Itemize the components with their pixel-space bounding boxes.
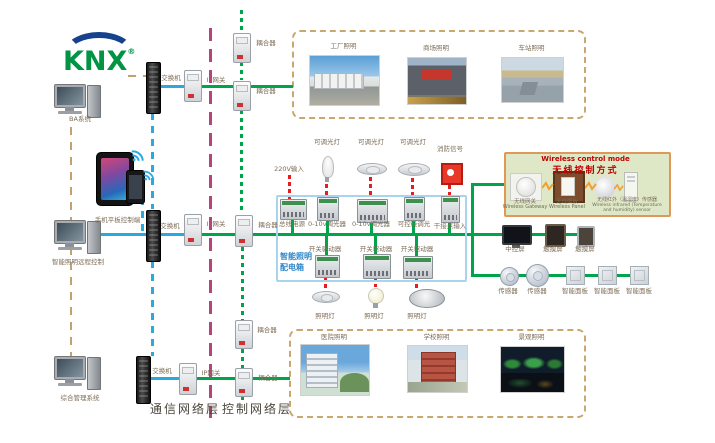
ba-system-label: BA系统 <box>40 116 120 124</box>
dimmable-lamp-label: 可调光灯 <box>393 139 433 147</box>
ethernet-line <box>149 377 180 380</box>
smart-panel-icon <box>598 266 617 285</box>
ip-gateway-label: IP网关 <box>201 77 231 85</box>
wireless-signal-icon <box>542 181 554 191</box>
photo-label: 工厂照明 <box>309 43 378 51</box>
monitor <box>54 84 86 108</box>
coupler-label: 耦合器 <box>254 375 282 383</box>
phone-screen <box>129 175 142 199</box>
knx-branch-line <box>474 233 502 236</box>
ethernet-line-dashed <box>151 113 154 209</box>
knx-line-dotted <box>240 110 243 214</box>
ip-gateway-device <box>184 70 202 102</box>
coupler-device <box>233 81 251 111</box>
knx-lighting-system-diagram: KNX® BA系统 手机平板控制端 智能照明远程控制 综合管理系统 交换机 IP… <box>0 0 715 443</box>
wireless-signal-icon <box>614 183 624 192</box>
dimmer-label: 0-10v调光器 <box>303 221 351 229</box>
remote-control-computer <box>54 220 104 256</box>
monitor-screen <box>57 223 83 241</box>
registered-mark-icon: ® <box>127 47 135 56</box>
switch-label: 交换机 <box>157 75 185 83</box>
sensor-label: 传感器 <box>492 288 524 296</box>
candle-lamp-icon <box>322 156 334 178</box>
central-screen-label: 中控屏 <box>498 246 532 254</box>
knx-trunk-line <box>471 183 474 277</box>
factory-lighting-photo <box>309 55 380 106</box>
sensor-icon <box>526 264 549 287</box>
monitor-screen <box>57 359 83 377</box>
wireless-sensor-label-en: Wireless infrared (Temperature and humid… <box>588 203 666 213</box>
knx-logo-text: KNX <box>63 46 127 77</box>
smart-panel-icon <box>566 266 585 285</box>
sensor-label: 传感器 <box>521 288 553 296</box>
bus-power-device <box>280 199 307 220</box>
monitor-screen <box>57 87 83 105</box>
switch-label: 交换机 <box>156 223 184 231</box>
knx-branch-line <box>474 274 501 277</box>
central-screen-icon <box>502 225 532 245</box>
control-layer-label: 控制网络层 <box>222 400 292 417</box>
ip-gateway-device <box>179 363 197 395</box>
switch-actuator-device <box>315 255 340 278</box>
coupler-device <box>235 215 253 247</box>
ip-gateway-label: IP网关 <box>201 221 231 229</box>
wifi-icon <box>130 145 148 163</box>
smart-panel-label: 智能面板 <box>590 288 624 296</box>
knx-line-dotted <box>241 349 244 368</box>
ethernet-line-dashed <box>151 261 154 356</box>
remote-control-label: 智能照明远程控制 <box>32 259 124 267</box>
distribution-box-title-line2: 配电箱 <box>280 262 304 273</box>
smart-panel-icon <box>630 266 649 285</box>
bulb-lamp-icon <box>368 288 384 304</box>
photo-label: 医院照明 <box>300 334 368 342</box>
touchscreen-icon <box>545 224 566 247</box>
monitor-base <box>58 383 82 386</box>
hospital-lighting-photo <box>300 344 370 396</box>
knx-line-dotted <box>241 247 244 320</box>
pc-tower <box>87 85 101 118</box>
wifi-icon <box>142 166 158 182</box>
knx-branch-line <box>474 183 505 186</box>
photo-label: 车站照明 <box>501 45 562 53</box>
switch-actuator-label: 开关驱动器 <box>393 246 441 254</box>
smart-panel-label: 智能面板 <box>622 288 656 296</box>
triac-dimmer-device <box>404 197 425 221</box>
mobile-control-label: 手机平板控制端 <box>80 217 155 225</box>
management-computer <box>54 356 104 392</box>
smart-panel-label: 智能面板 <box>558 288 592 296</box>
dimmer-label: 0-10v调光器 <box>346 221 396 229</box>
monitor-base <box>58 111 82 114</box>
coupler-label: 耦合器 <box>252 88 280 96</box>
switch-actuator-device <box>403 256 433 279</box>
dish-lamp-icon <box>409 289 445 308</box>
sensor-icon <box>500 267 519 286</box>
knx-line-dotted <box>240 10 243 31</box>
coupler-label: 耦合器 <box>252 40 280 48</box>
knx-logo: KNX® <box>63 48 135 75</box>
switch-actuator-device <box>363 254 391 279</box>
monitor <box>54 356 86 380</box>
downlight-icon <box>357 163 387 175</box>
photo-label: 景观照明 <box>500 334 563 342</box>
dry-contact-label: 干接点输入 <box>430 223 470 231</box>
ethernet-line <box>98 233 148 236</box>
ethernet-line <box>159 233 185 236</box>
fire-alarm-icon <box>441 163 463 185</box>
pc-tower <box>87 221 101 254</box>
wireless-panel-label-en: Wireless Panel <box>539 205 595 211</box>
ceiling-lamp-icon <box>398 163 430 176</box>
coupler-device <box>235 320 253 349</box>
coupler-device <box>233 33 251 63</box>
knx-branch-line <box>616 274 630 277</box>
monitor-base <box>58 247 82 250</box>
wireless-signal-icon <box>585 181 597 191</box>
pc-tower <box>87 357 101 390</box>
dry-contact-device <box>441 196 460 223</box>
station-lighting-photo <box>501 57 564 103</box>
mall-lighting-photo <box>407 57 467 105</box>
knx-branch-line <box>584 274 598 277</box>
fire-signal-label: 消防信号 <box>430 146 470 154</box>
ceiling-lamp-icon <box>312 291 340 303</box>
lighting-lamp-label: 照明灯 <box>354 313 394 321</box>
knx-line-dotted <box>240 62 243 80</box>
wireless-title-zh: 无线控制方式 <box>504 163 667 176</box>
ip-gateway-label: IP网关 <box>196 370 226 378</box>
dimmer-device <box>317 197 339 221</box>
lighting-lamp-label: 照明灯 <box>305 313 345 321</box>
photo-label: 商场照明 <box>407 45 465 53</box>
switch-actuator-label: 开关驱动器 <box>301 246 349 254</box>
communication-layer-label: 通信网络层 <box>150 400 220 417</box>
coupler-device <box>235 368 253 397</box>
touchscreen-icon <box>577 226 595 247</box>
touchscreen-label: 触摸屏 <box>568 246 602 254</box>
switch-label: 交换机 <box>148 368 176 376</box>
dimmable-lamp-label: 可调光灯 <box>307 139 347 147</box>
wireless-gateway-icon <box>510 173 542 201</box>
power-input-label: 220V输入 <box>271 166 307 174</box>
wireless-title-en: Wireless control mode <box>504 155 667 163</box>
school-lighting-photo <box>407 345 468 393</box>
knx-branch-line <box>548 274 566 277</box>
touchscreen-label: 触摸屏 <box>536 246 570 254</box>
photo-label: 学校照明 <box>407 334 466 342</box>
network-switch <box>146 62 161 114</box>
coupler-label: 耦合器 <box>253 327 281 335</box>
network-switch <box>136 356 151 404</box>
ethernet-line <box>159 85 185 88</box>
management-system-label: 综合管理系统 <box>40 395 120 403</box>
dimmable-lamp-label: 可调光灯 <box>351 139 391 147</box>
landscape-lighting-photo <box>500 346 565 393</box>
lighting-lamp-label: 照明灯 <box>395 313 439 321</box>
ip-gateway-device <box>184 214 202 246</box>
tablet-screen <box>101 158 129 200</box>
